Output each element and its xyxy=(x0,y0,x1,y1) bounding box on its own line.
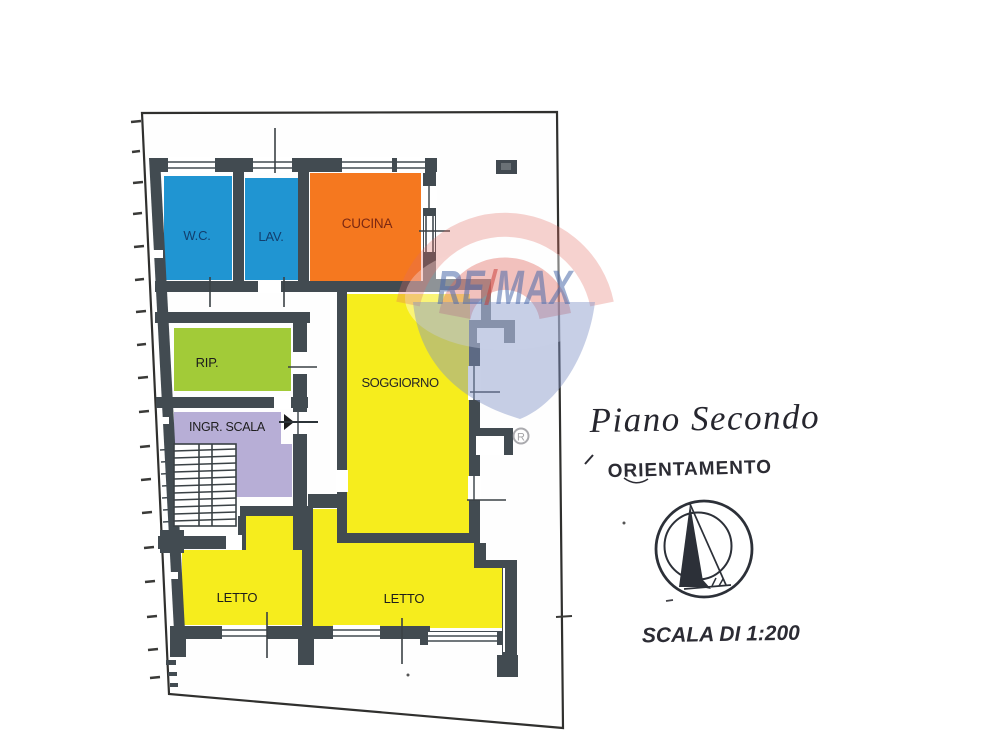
svg-text:Piano Secondo: Piano Secondo xyxy=(588,397,820,440)
svg-text:SCALA DI 1:200: SCALA DI 1:200 xyxy=(642,622,801,648)
svg-text:INGR. SCALA: INGR. SCALA xyxy=(189,420,266,434)
svg-text:CUCINA: CUCINA xyxy=(342,216,393,231)
svg-text:ORIENTAMENTO: ORIENTAMENTO xyxy=(607,457,772,482)
svg-text:W.C.: W.C. xyxy=(183,228,210,243)
svg-text:RE/MAX: RE/MAX xyxy=(437,262,574,315)
svg-text:SOGGIORNO: SOGGIORNO xyxy=(361,375,439,390)
svg-text:LETTO: LETTO xyxy=(384,591,425,606)
svg-text:LETTO: LETTO xyxy=(217,590,258,605)
svg-text:LAV.: LAV. xyxy=(258,229,283,244)
svg-text:RIP.: RIP. xyxy=(196,355,219,370)
svg-text:R: R xyxy=(517,432,525,444)
